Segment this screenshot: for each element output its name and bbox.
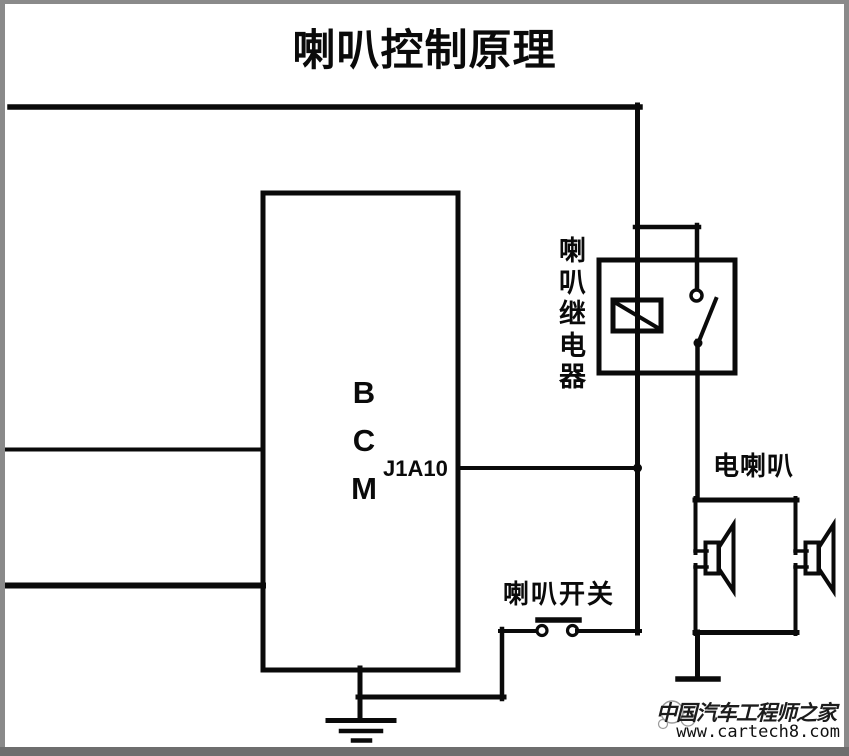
frame-border-bottom: [0, 747, 849, 756]
switch-terminal-left: [537, 626, 547, 636]
horn-label: 电喇叭: [713, 452, 794, 482]
speaker-driver: [706, 543, 719, 574]
relay-contact-blade: [699, 299, 716, 341]
horn-speaker-left: [695, 525, 734, 592]
junction-dot: [633, 464, 642, 473]
switch-label: 喇叭开关: [503, 580, 615, 610]
speaker-driver: [806, 543, 819, 574]
page-title: 喇叭控制原理: [0, 27, 849, 76]
relay-label: 喇叭继电器: [556, 236, 589, 394]
diagram-page: 喇叭控制原理 喇叭继电器 BCM J1A10 电喇叭 喇叭开关 中国汽车工程师之…: [0, 0, 849, 756]
speaker-cone-icon: [819, 525, 834, 592]
frame-border-top: [0, 0, 849, 4]
speaker-cone-icon: [719, 525, 734, 592]
watermark-site-url: www.cartech8.com: [676, 722, 840, 742]
horn-speaker-right: [795, 525, 834, 592]
circuit-diagram: [0, 0, 849, 756]
relay-box: [599, 260, 735, 373]
relay-contact-terminal: [691, 290, 702, 301]
bcm-label: BCM: [347, 369, 381, 513]
frame-border-right: [844, 0, 849, 756]
bcm-pin-label: J1A10: [383, 456, 448, 481]
frame-border-left: [0, 0, 5, 756]
